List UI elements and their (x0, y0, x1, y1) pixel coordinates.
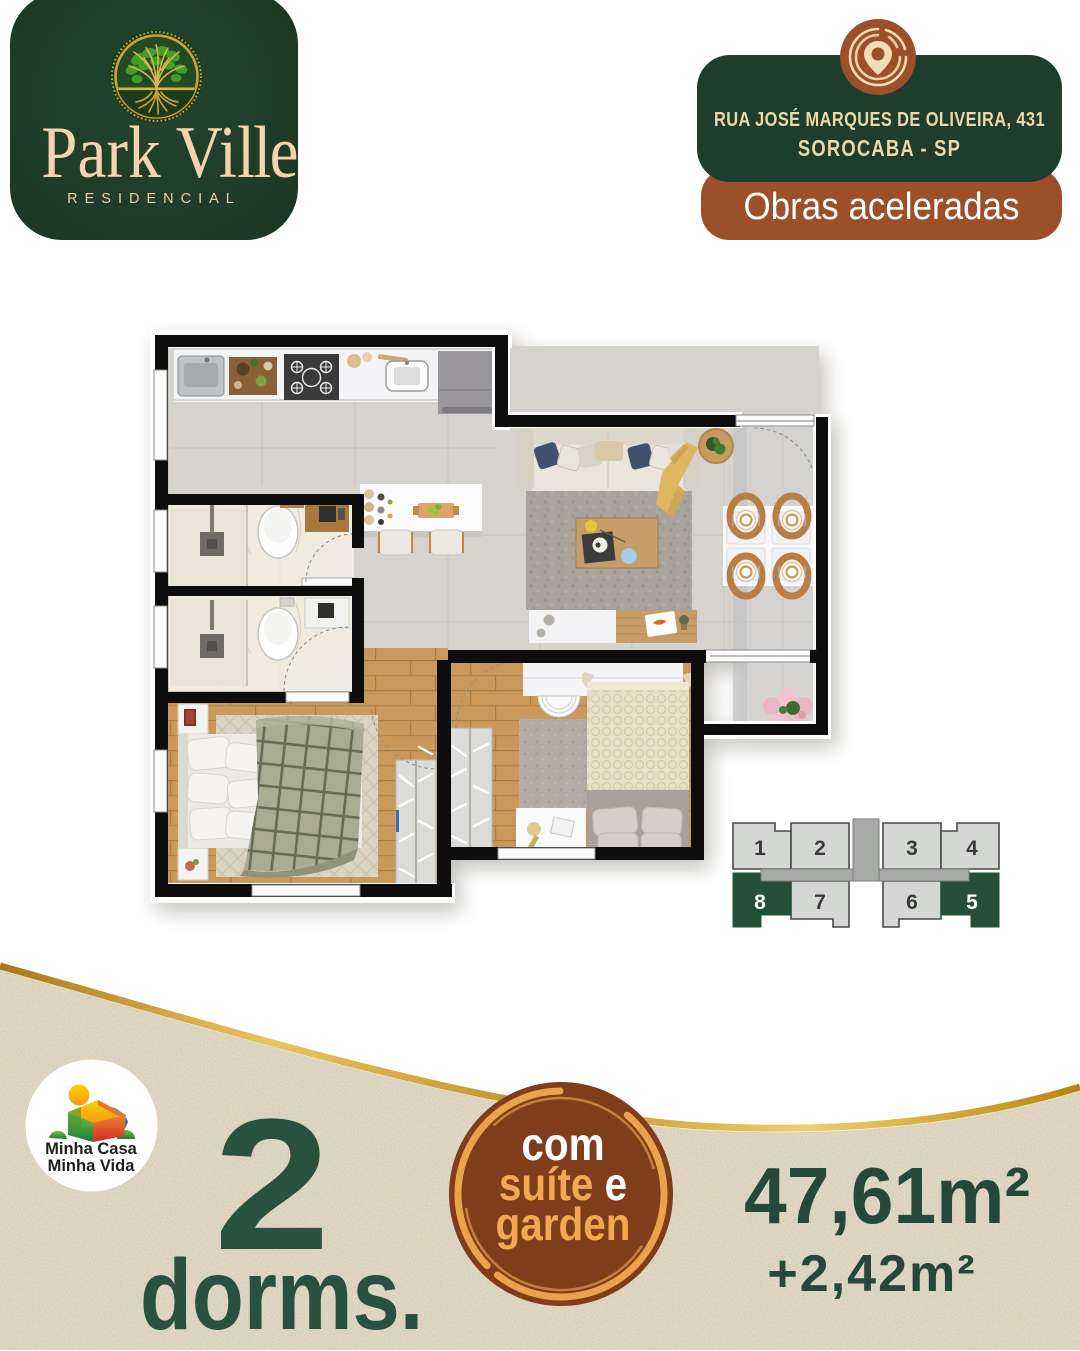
svg-text:6: 6 (906, 891, 918, 914)
svg-text:3: 3 (906, 837, 918, 860)
svg-text:7: 7 (814, 891, 826, 914)
svg-text:2: 2 (814, 837, 826, 860)
svg-text:1: 1 (754, 837, 766, 860)
svg-text:4: 4 (966, 837, 978, 860)
svg-text:8: 8 (754, 891, 766, 914)
svg-text:5: 5 (966, 891, 978, 914)
